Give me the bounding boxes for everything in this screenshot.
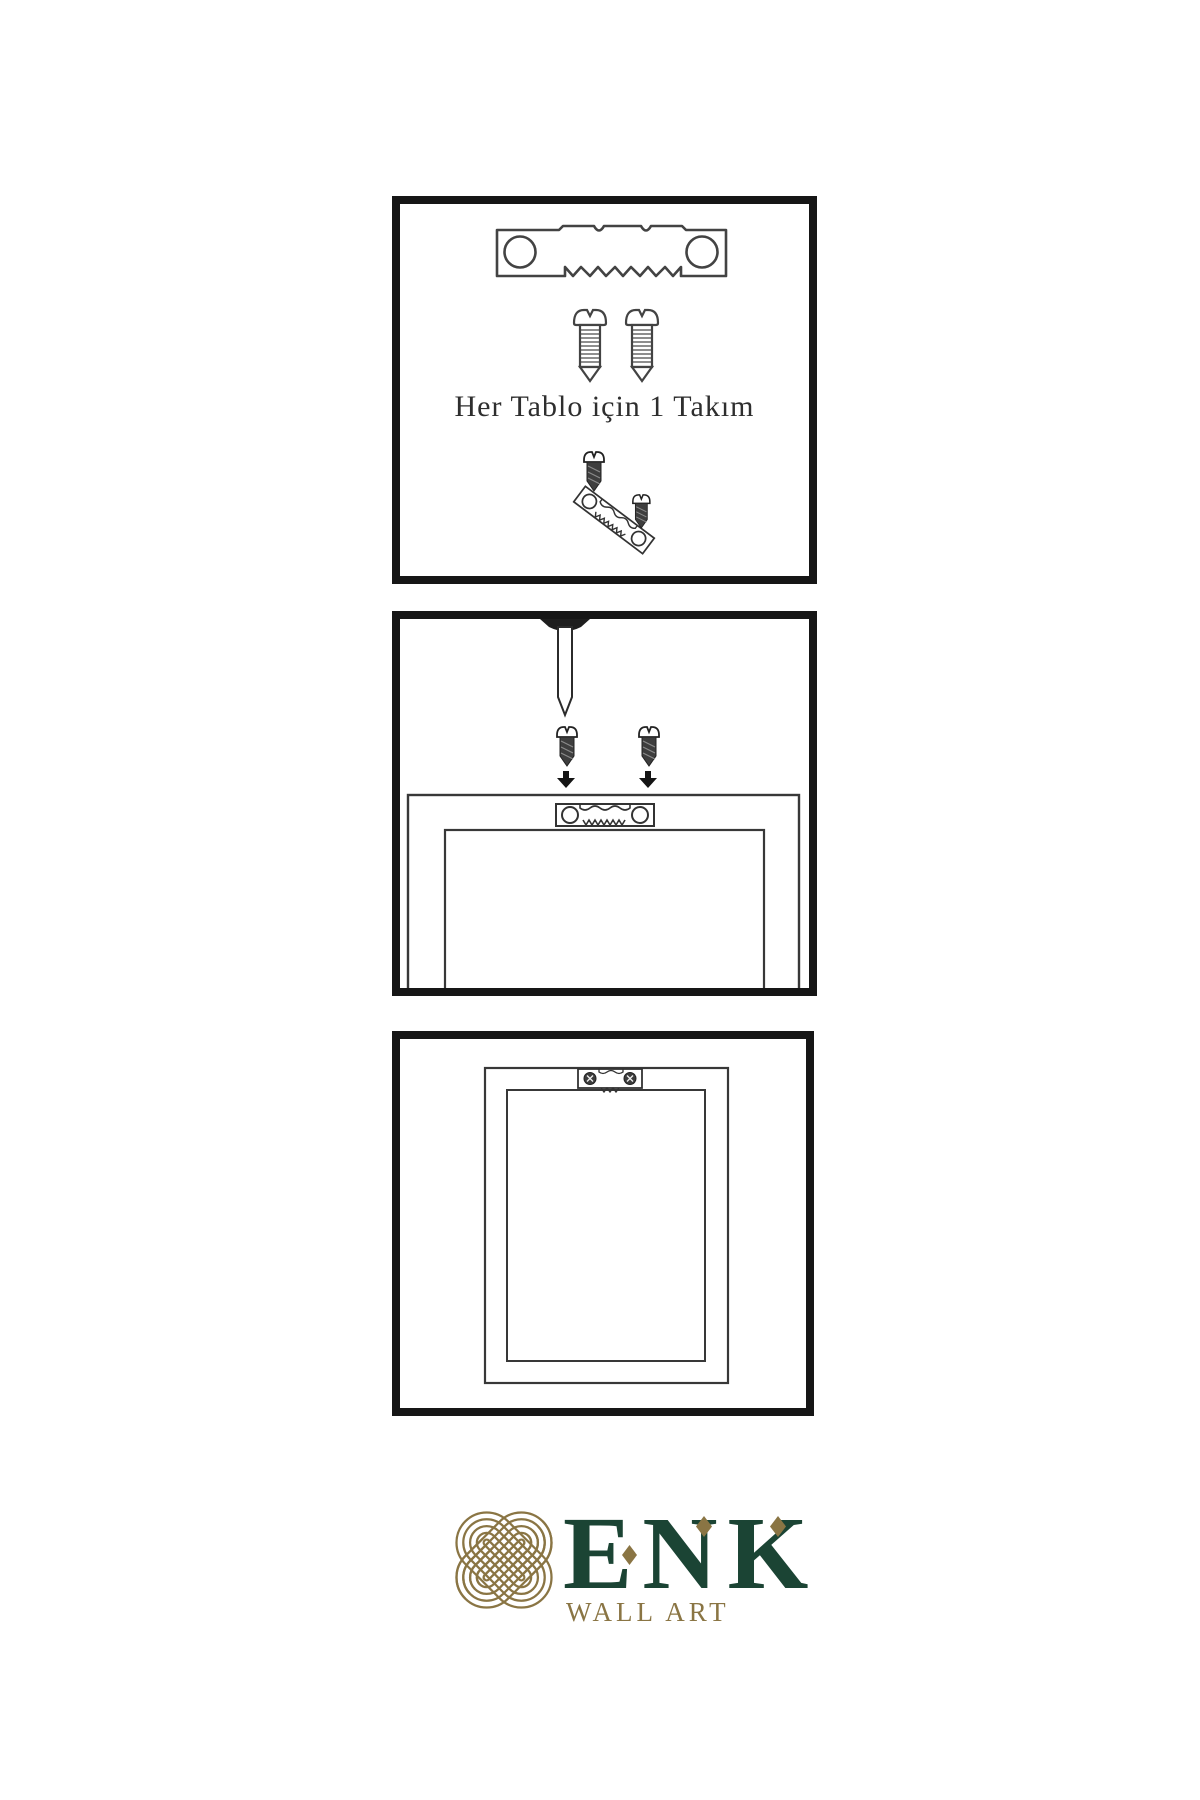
sawtooth-hanger-icon xyxy=(497,226,726,276)
screw-icon xyxy=(626,310,658,381)
sawtooth-hanger-icon xyxy=(556,804,654,826)
mounted-sawtooth-hanger-icon xyxy=(578,1069,642,1092)
panel-hardware-set: Her Tablo için 1 Takım xyxy=(392,196,817,584)
panel-mounted-frame xyxy=(392,1031,814,1416)
brand-subtitle: WALL ART xyxy=(566,1599,730,1626)
down-arrow-icon xyxy=(639,771,657,788)
hardware-set-caption: Her Tablo için 1 Takım xyxy=(400,390,809,424)
diamond-accent-icon xyxy=(770,1516,786,1537)
dark-screw-icon xyxy=(639,727,659,766)
screw-icon xyxy=(574,310,606,381)
frame-inner-edge xyxy=(507,1090,705,1361)
diamond-accent-icon xyxy=(622,1545,637,1565)
dark-screw-icon xyxy=(584,452,604,491)
wall-nail-icon xyxy=(540,619,590,715)
diamond-accent-icon xyxy=(696,1516,712,1537)
down-arrow-icon xyxy=(557,771,575,788)
frame-outer-edge xyxy=(485,1068,728,1383)
panel-install-hanger xyxy=(392,611,817,996)
mounted-frame-illustration xyxy=(400,1039,806,1408)
infographic-page: Her Tablo için 1 Takım xyxy=(0,0,1200,1800)
frame-inner-edge xyxy=(445,830,764,988)
dark-screw-icon xyxy=(557,727,577,766)
brand-knot-icon xyxy=(438,1494,570,1626)
install-hanger-illustration xyxy=(400,619,809,988)
